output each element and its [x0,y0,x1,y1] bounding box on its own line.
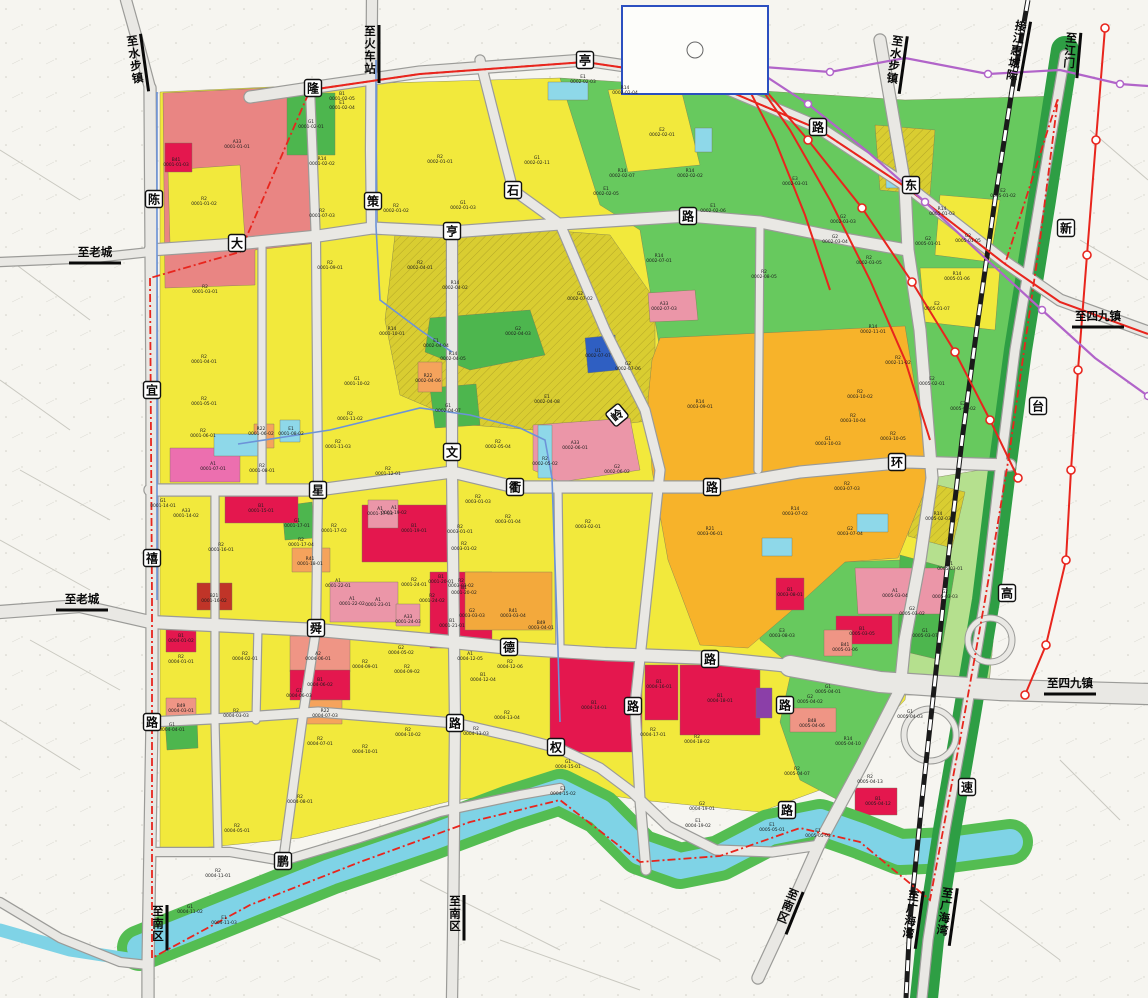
railway-station-block [622,6,768,94]
v-street-560 [558,487,560,650]
planning-map[interactable]: B410001-01-03A330001-01-01R20001-01-02B1… [0,0,1148,998]
road-badge-char: 衢 [509,479,521,494]
metro-red-2-station [1042,641,1050,649]
road-badge-char: 高 [1001,585,1013,600]
road-badge-权-26: 权 [548,739,565,756]
wen-road-vertical [452,232,455,998]
road-badge-char: 星 [312,483,324,497]
metro-red-1-station [858,204,866,212]
road-badge-char: 路 [779,697,792,712]
red-parcel-0004-16 [645,665,678,720]
road-badge-char: 鹏 [277,853,289,868]
metro-red-2-station [1021,691,1029,699]
edge-label-text: 至四九镇 [1075,309,1121,323]
metro-red-2-station [1074,366,1082,374]
map-canvas: B410001-01-03A330001-01-01R20001-01-02B1… [0,0,1148,998]
road-badge-环-15: 环 [889,454,906,471]
metro-purple-1-station [827,69,834,76]
road-badge-char: 德 [503,639,515,654]
road-badge-char: 环 [891,455,903,469]
metro-purple-2-station [922,199,929,206]
road-badge-高-16: 高 [999,585,1016,602]
road-badge-路-4: 路 [144,714,161,731]
edge-label-text: 至四九镇 [1047,676,1093,690]
road-badge-亨-10: 亨 [444,223,461,240]
metro-red-1-station [951,348,959,356]
road-badge-路-21: 路 [704,479,721,496]
metro-purple-2-station [1145,393,1148,400]
road-badge-char: 禧 [146,550,158,565]
road-badge-路-25: 路 [702,651,719,668]
road-badge-鹏-31: 鹏 [275,853,292,870]
road-badge-char: 路 [627,698,640,713]
road-badge-衢-20: 衢 [507,479,524,496]
road-badge-char: 文 [446,444,459,459]
road-badge-路-28: 路 [447,715,464,732]
road-badge-路-11: 路 [680,208,697,225]
road-badge-路-7: 路 [810,119,827,136]
road-badge-新-13: 新 [1058,220,1075,237]
road-badge-舜-23: 舜 [308,620,325,637]
road-badge-char: 亭 [579,52,591,67]
road-badge-宜-2: 宜 [144,382,161,399]
v-street-262b [256,626,258,720]
edge-label-text: 至南区 [152,904,164,943]
metro-red-2-station [1067,466,1075,474]
road-badge-策-8: 策 [365,193,382,210]
road-badge-char: 东 [905,177,917,192]
road-badge-char: 大 [231,235,243,250]
metro-purple-1-station [985,71,992,78]
cyan-pond-6 [762,538,792,556]
road-badge-文-18: 文 [444,444,461,461]
road-badge-char: 路 [704,651,717,666]
road-badge-char: 路 [449,715,462,730]
metro-red-2-station [1062,556,1070,564]
road-badge-陈-0: 陈 [146,191,163,208]
road-badge-char: 舜 [310,620,322,635]
road-badge-德-24: 德 [501,639,518,656]
v-street-760 [758,222,760,470]
road-badge-路-27: 路 [625,698,642,715]
road-badge-星-19: 星 [310,482,327,499]
edge-label-text: 至南区 [449,894,461,933]
road-badge-石-9: 石 [505,182,522,199]
road-badge-char: 路 [682,208,695,223]
road-badge-东-12: 东 [903,177,920,194]
cyan-pond-5 [857,514,888,532]
pink-parcel-0002-07 [648,290,698,322]
road-badge-禧-3: 禧 [144,550,161,567]
edge-label-text: 至老城 [65,592,100,606]
road-badge-char: 路 [812,119,825,134]
road-badge-速-17: 速 [959,779,976,796]
road-badge-char: 陈 [148,191,160,206]
cyan-pond-3 [695,128,712,152]
road-badge-char: 路 [781,802,794,817]
road-badge-char: 台 [1032,398,1044,413]
road-badge-char: 宜 [146,382,158,397]
metro-red-1-station [986,416,994,424]
metro-purple-2-station [1039,307,1046,314]
metro-red-2-station [1092,136,1100,144]
purple-parcel [756,688,772,718]
road-badge-char: 权 [549,739,563,754]
road-badge-char: 速 [961,779,973,794]
metro-red-2-station [1101,24,1109,32]
edge-label-text: 至老城 [78,245,113,259]
metro-red-1-station [908,278,916,286]
metro-purple-2-station [805,101,812,108]
road-badge-char: 新 [1060,220,1072,235]
station-block-layer [622,6,768,94]
cyan-pond-1 [214,434,258,456]
road-badge-char: 路 [706,479,719,494]
road-badge-亭-6: 亭 [577,52,594,69]
metro-red-1-station [804,136,812,144]
road-badge-char: 策 [367,193,380,208]
road-badge-char: 亨 [446,223,458,238]
edge-label-text: 至火车站 [364,24,376,76]
road-badge-隆-5: 隆 [305,80,322,97]
road-badge-char: 路 [146,714,159,729]
road-badge-大-1: 大 [229,235,246,252]
road-badge-char: 隆 [307,80,320,95]
metro-purple-1-station [1117,81,1124,88]
pink-parcel-0005-03-04 [855,568,945,614]
road-badge-char: 石 [506,183,519,197]
road-badge-路-29: 路 [777,697,794,714]
road-badge-台-14: 台 [1030,398,1047,415]
road-badge-路-30: 路 [779,802,796,819]
metro-red-2-station [1083,251,1091,259]
metro-red-1-station [1014,474,1022,482]
